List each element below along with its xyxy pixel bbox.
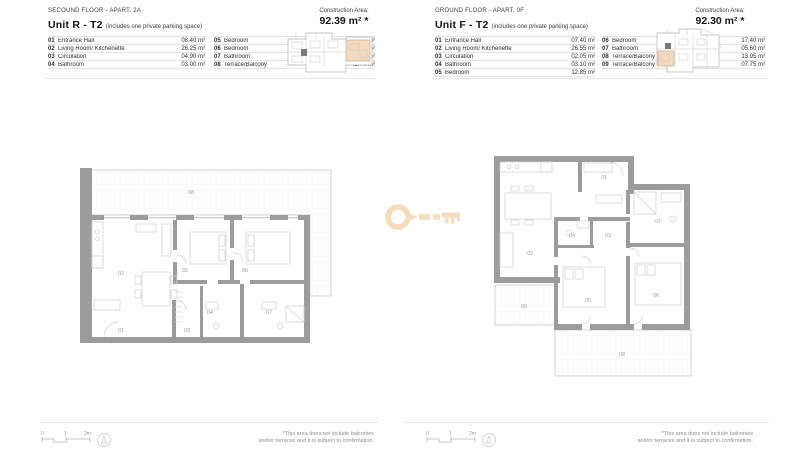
svg-text:03: 03 (184, 328, 190, 334)
svg-text:02: 02 (527, 251, 533, 257)
floorplan-unit-r: 08 02 05 06 01 03 04 07 (78, 160, 332, 365)
svg-text:04: 04 (207, 310, 213, 316)
unit-name: Unit F - T2 (435, 19, 489, 31)
svg-text:01: 01 (118, 328, 124, 334)
unit-note: (includes one private parking space) (106, 24, 202, 30)
room-row: 02Living Room/ Kitchenette26.25 m² (48, 45, 205, 53)
room-row: 04Bathroom03.00 m² (48, 61, 205, 69)
svg-text:08: 08 (188, 190, 194, 196)
svg-text:05: 05 (585, 298, 591, 304)
floor-label: GROUND FLOOR - APART. 0F (435, 8, 524, 14)
terrace-area (88, 170, 331, 296)
svg-text:05: 05 (182, 268, 188, 274)
svg-text:1: 1 (64, 431, 67, 437)
scale-bar: 0 1 2m (425, 428, 503, 448)
scale-bar: 0 1 2m (40, 428, 118, 448)
unit-panel-left: SECOUND FLOOR - APART. 2A Unit R - T2(in… (0, 0, 400, 450)
construction-area-block: Construction Area: 92.39 m² * (302, 8, 386, 27)
room-row: 02Living Room/ Kitchenette26.55 m² (435, 45, 595, 53)
construction-area-block: Construction Area: 92.30 m² * (678, 8, 762, 27)
construction-area-label: Construction Area: (678, 8, 762, 14)
svg-text:2m: 2m (469, 431, 476, 437)
svg-text:1: 1 (449, 431, 452, 437)
svg-text:07: 07 (266, 310, 272, 316)
svg-text:09: 09 (521, 304, 527, 310)
room-list-col1: 01Entrance Hall07.40 m² 02Living Room/ K… (435, 36, 595, 77)
unit-title: Unit F - T2(includes one private parking… (435, 15, 588, 33)
header-divider (432, 78, 768, 79)
stair-core (665, 43, 671, 49)
construction-area-value: 92.39 m² * (302, 15, 386, 27)
svg-text:0: 0 (426, 431, 429, 437)
construction-area-label: Construction Area: (302, 8, 386, 14)
svg-text:06: 06 (242, 268, 248, 274)
unit-note: (includes one private parking space) (492, 24, 588, 30)
room-row: 05Bedroom12.85 m² (435, 69, 595, 77)
room-row: 01Entrance Hall08.40 m² (48, 37, 205, 45)
header-divider (45, 78, 375, 79)
unit-title: Unit R - T2(includes one private parking… (48, 15, 202, 33)
highlighted-unit (658, 51, 674, 66)
stair-core (301, 49, 307, 56)
unit-name: Unit R - T2 (48, 19, 103, 31)
room-row: 03Circulation04.90 m² (48, 53, 205, 61)
svg-text:07: 07 (655, 219, 661, 225)
area-disclaimer: *This area does not include balconies an… (623, 431, 753, 444)
construction-area-value: 92.30 m² * (678, 15, 762, 27)
floor-label: SECOUND FLOOR - APART. 2A (48, 8, 141, 14)
svg-text:03: 03 (605, 233, 611, 239)
room-row: 01Entrance Hall07.40 m² (435, 37, 595, 45)
svg-text:08: 08 (619, 352, 625, 358)
room-list-col1: 01Entrance Hall08.40 m² 02Living Room/ K… (48, 36, 205, 69)
svg-text:06: 06 (653, 293, 659, 299)
svg-text:01: 01 (601, 175, 607, 181)
location-miniplan (653, 27, 723, 75)
svg-text:0: 0 (41, 431, 44, 437)
floorplan-unit-f: 02 01 04 03 07 05 06 09 08 (489, 155, 714, 392)
svg-text:2m: 2m (84, 431, 91, 437)
room-row: 04Bathroom03.10 m² (435, 61, 595, 69)
svg-text:02: 02 (118, 271, 124, 277)
svg-text:04: 04 (569, 233, 575, 239)
footer-divider (40, 422, 378, 423)
area-disclaimer: *This area does not include balconies an… (244, 431, 374, 444)
room-row: 03Circulation02.05 m² (435, 53, 595, 61)
key-icon (383, 200, 463, 234)
location-miniplan (286, 29, 374, 76)
footer-divider (404, 422, 769, 423)
